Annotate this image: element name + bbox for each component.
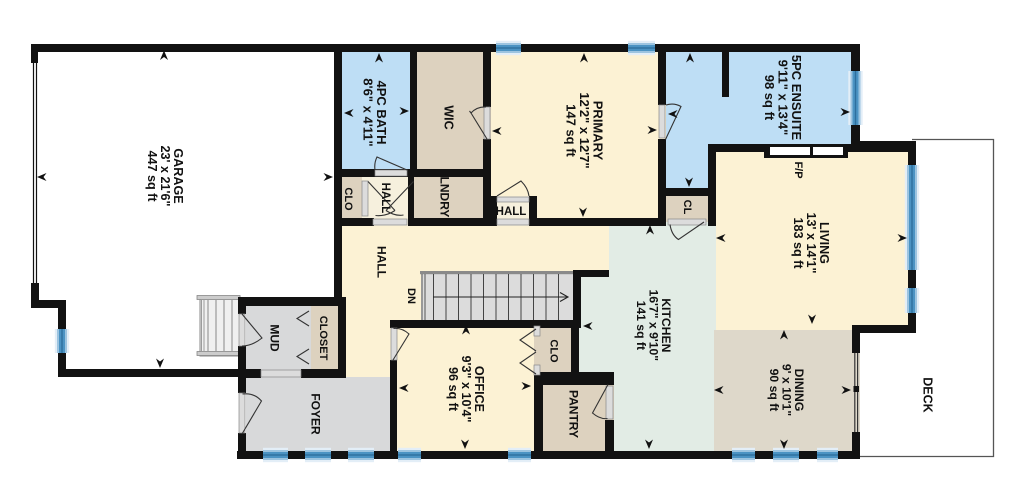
- svg-text:CLO: CLO: [548, 339, 560, 363]
- svg-text:PANTRY: PANTRY: [567, 390, 581, 438]
- svg-text:147 sq ft: 147 sq ft: [563, 104, 578, 157]
- svg-text:CL: CL: [681, 200, 693, 215]
- svg-text:LNDRY: LNDRY: [438, 177, 452, 218]
- svg-text:DECK: DECK: [921, 377, 935, 412]
- svg-text:96 sq ft: 96 sq ft: [446, 367, 460, 412]
- svg-text:HALL: HALL: [379, 183, 391, 214]
- svg-text:8'6" x 4'11": 8'6" x 4'11": [361, 78, 376, 146]
- svg-text:OFFICE: OFFICE: [472, 366, 486, 412]
- svg-text:FOYER: FOYER: [309, 393, 323, 435]
- svg-text:183 sq ft: 183 sq ft: [791, 217, 805, 269]
- svg-text:447 sq ft: 447 sq ft: [145, 150, 159, 202]
- svg-text:141 sq ft: 141 sq ft: [634, 301, 648, 350]
- svg-text:90 sq ft: 90 sq ft: [767, 369, 781, 412]
- svg-text:DN: DN: [405, 288, 417, 304]
- svg-text:HALL: HALL: [496, 206, 527, 218]
- svg-text:13' x 14'1": 13' x 14'1": [804, 213, 818, 274]
- svg-text:9'3" x 10'4": 9'3" x 10'4": [459, 356, 473, 423]
- svg-text:GARAGE: GARAGE: [171, 148, 185, 203]
- svg-text:HALL: HALL: [375, 246, 389, 278]
- svg-text:CLO: CLO: [342, 187, 354, 211]
- svg-text:WIC: WIC: [442, 105, 456, 129]
- svg-text:MUD: MUD: [268, 324, 282, 352]
- svg-text:23' x 21'6": 23' x 21'6": [158, 146, 172, 207]
- svg-text:LIVING: LIVING: [817, 222, 831, 264]
- svg-text:CLOSET: CLOSET: [317, 316, 329, 361]
- svg-text:F/P: F/P: [792, 161, 804, 178]
- svg-text:98 sq ft: 98 sq ft: [762, 75, 777, 121]
